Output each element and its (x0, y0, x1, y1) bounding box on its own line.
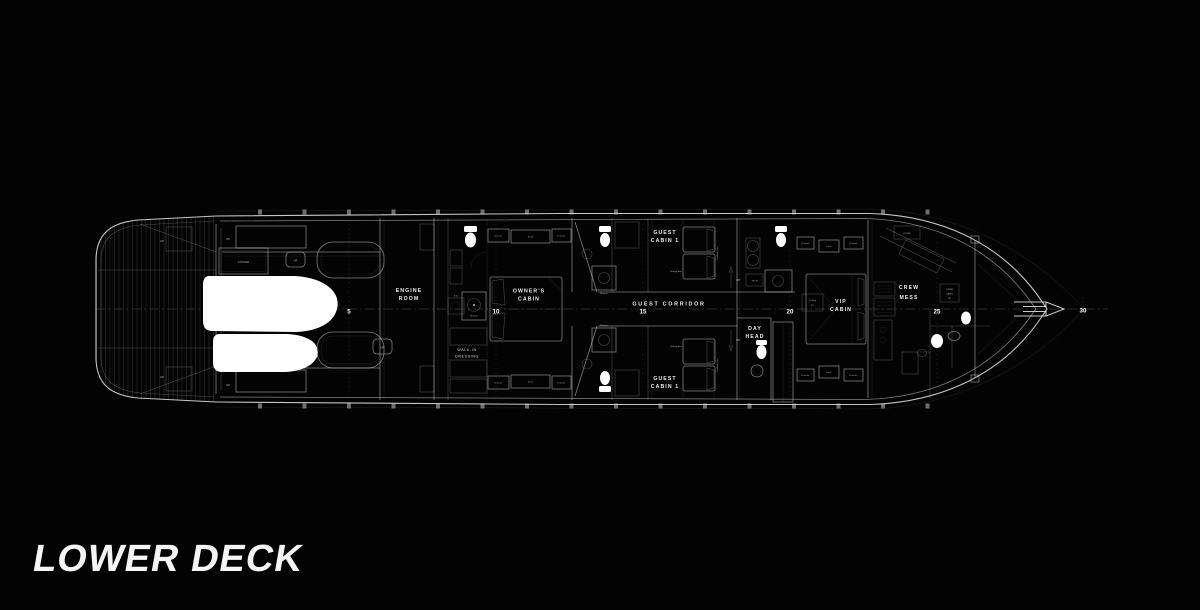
vip-toilet-tank (775, 226, 787, 232)
galley-note-lines-1 (877, 286, 892, 292)
aft-stairs-port (236, 226, 306, 248)
galley-note-lines-2 (877, 302, 892, 313)
crew-mess-label-1: CREW (899, 285, 919, 291)
guest-stairs-bottom (615, 370, 639, 396)
aft-stairs-starboard (236, 370, 306, 392)
ceiling-tv-label-1: Ceiling (809, 300, 817, 302)
day-head-label-1: DAY (748, 326, 762, 332)
guest-toilet-top (600, 233, 610, 247)
tender-garage: UP UP LOCKER UP UP (203, 226, 392, 392)
lower-deck-plan: 5 10 15 20 25 30 UP UP UP UP LOCKER UP U… (0, 0, 1200, 610)
vip-toilet (776, 233, 786, 247)
vip-sink-2 (748, 255, 759, 266)
dresser-label: Dresser (558, 382, 566, 385)
guest-toilet-bottom (600, 371, 610, 385)
engine-escape-hatch-bottom (420, 366, 434, 392)
dresser-label: Dresser (802, 242, 810, 245)
guest-bed-top-2 (683, 254, 715, 279)
day-head-toilet-tank (756, 340, 767, 345)
crew-cabin-label-2: CABIN (946, 293, 953, 296)
guest-cabin-bottom-label-1: GUEST (653, 376, 676, 382)
vip-vanity (746, 238, 760, 268)
up-label-hatch-port: UP (294, 260, 298, 263)
crew-toilet-1 (961, 312, 971, 325)
frame-marker-5: 5 (347, 309, 351, 316)
crew-sink-2 (918, 350, 927, 357)
frame-marker-15: 15 (640, 309, 647, 316)
crew-berth-diagonals (880, 228, 956, 273)
ceiling-tv-unit (802, 294, 823, 311)
guest-cabin-bottom-label-2: CABIN 1 (651, 384, 679, 390)
crew-ladder (902, 352, 918, 374)
guest-shower-drain-bottom (599, 335, 610, 346)
day-head-toilet (757, 345, 767, 359)
ceiling-tv-label-2: TV (811, 305, 814, 307)
dinghy-silhouette (213, 334, 318, 372)
watertoy-port-inner (321, 246, 380, 274)
guest-stairs-top (615, 222, 639, 248)
guest-shower-drain-top (599, 273, 610, 284)
guest-bed-bottom-1 (683, 339, 715, 364)
walk-in-label-2: DRESSING (455, 355, 479, 359)
crew-cabin-label-3: UP (948, 298, 952, 300)
pullman-bed-label-top: Pullman bed (717, 246, 719, 259)
owners-bath-cabinet-2 (450, 268, 462, 284)
locker-label: LOCKER (238, 261, 249, 264)
guest-cabin-top-label-1: GUEST (653, 230, 676, 236)
guest-cabin-top-label-2: CABIN 1 (651, 238, 679, 244)
frame-marker-20: 20 (787, 309, 794, 316)
owners-toilet (465, 233, 476, 248)
engine-room-label-1: ENGINE (396, 288, 423, 294)
watertoy-starboard-inner (321, 336, 380, 364)
guest-closet-top-1 (652, 219, 682, 229)
guest-sink-bottom (582, 359, 592, 369)
guest-pillow-top-2 (707, 256, 714, 278)
guest-closet-top-2 (684, 219, 714, 229)
wardrobe-3 (450, 379, 487, 393)
vip-shower (765, 270, 792, 292)
dresser-label: Dresser (850, 374, 858, 377)
crew-toilet-2 (931, 334, 943, 348)
up-label-wing-starboard: UP (160, 376, 164, 379)
swim-platform: UP UP (96, 216, 221, 402)
deck-title: LOWER DECK (30, 540, 306, 578)
day-head-label-2: HEAD (745, 334, 764, 340)
frame-marker-30: 30 (1080, 308, 1087, 315)
sliding-bed-label-top: Sliding bed (670, 271, 682, 273)
up-label-stairs-starboard: UP (226, 384, 230, 387)
walk-in-label-1: WALK-IN (457, 348, 476, 352)
up-label-wing-port: UP (160, 240, 164, 243)
crew-galley-counter (874, 320, 892, 360)
galley-burner-2 (880, 337, 886, 343)
guest-bath-top-angled-wall (575, 222, 597, 292)
wardrobe-2 (450, 360, 487, 377)
dresser-label: Dresser (495, 382, 503, 385)
desk-label: Desk (528, 237, 534, 239)
sliding-bed-label-bottom: Sliding bed (670, 346, 682, 348)
guest-toilet-tank-top (599, 226, 611, 232)
guest-pillow-top-1 (707, 229, 714, 251)
desk-label: Desk (528, 382, 534, 384)
shower-label-owners: Shower (470, 315, 478, 318)
crew-sink-1 (948, 332, 960, 341)
sink-label-owners: Sink (454, 296, 459, 298)
guest-pillow-bottom-1 (707, 341, 714, 363)
day-head-sink-inner (753, 367, 761, 375)
pullman-bed-label-bottom: Pullman bed (717, 358, 719, 371)
corridor-up-arrow-top (729, 267, 733, 288)
guest-bed-top-1 (683, 227, 715, 252)
desk-label: Desk (826, 246, 832, 248)
crew-mess-label-2: MESS (899, 295, 918, 301)
owners-cabin-label-1: OWNER'S (513, 289, 545, 295)
crew-cabin-label-1: CREW (946, 289, 953, 291)
owners-cabin-label-2: CABIN (518, 297, 540, 303)
owners-bath-cabinet-1 (450, 250, 462, 266)
owners-toilet-tank (464, 226, 477, 232)
engine-room-label-2: ROOM (399, 296, 420, 302)
dresser-label: Dresser (802, 374, 810, 377)
tech-label: TECH (751, 281, 757, 283)
guest-toilet-tank-bottom (599, 386, 611, 392)
guest-corridor-label: GUEST CORRIDOR (632, 302, 705, 308)
tender-silhouette (203, 276, 338, 332)
dresser-label: Dresser (495, 235, 503, 238)
vip-cabin-label-2: CABIN (830, 307, 852, 313)
desk-label: Desk (826, 372, 832, 374)
corridor-up-arrow-bottom (729, 330, 733, 351)
shower-label-guest-top: Shower (600, 292, 608, 295)
guest-sink-top (582, 249, 592, 259)
guest-closet-bottom-1 (652, 389, 682, 399)
owners-door-arc (471, 252, 487, 268)
vip-cabin-label-1: VIP (835, 299, 847, 305)
frame-marker-25: 25 (934, 309, 941, 316)
dresser-label: Dresser (558, 235, 566, 238)
vip-shower-drain (773, 276, 784, 287)
wardrobe-1 (450, 328, 487, 345)
up-label-stairs-port: UP (226, 238, 230, 241)
lower-deck-page: 5 10 15 20 25 30 UP UP UP UP LOCKER UP U… (0, 0, 1200, 610)
galley-burner-1 (880, 327, 886, 333)
vip-sink-1 (748, 241, 759, 252)
platform-planking (96, 216, 216, 402)
guest-pillow-bottom-2 (707, 368, 714, 390)
guest-closet-bottom-2 (684, 389, 714, 399)
shower-label-guest-bottom: Shower (600, 324, 608, 327)
store-label: STORE (903, 233, 911, 235)
engine-escape-hatch-top (420, 224, 434, 250)
guest-bed-bottom-2 (683, 366, 715, 391)
galley-note-box-2 (874, 298, 895, 316)
dresser-label: Dresser (850, 242, 858, 245)
guest-bath-bottom-angled-wall (575, 326, 597, 396)
owners-shower-drain-dot (473, 304, 475, 306)
